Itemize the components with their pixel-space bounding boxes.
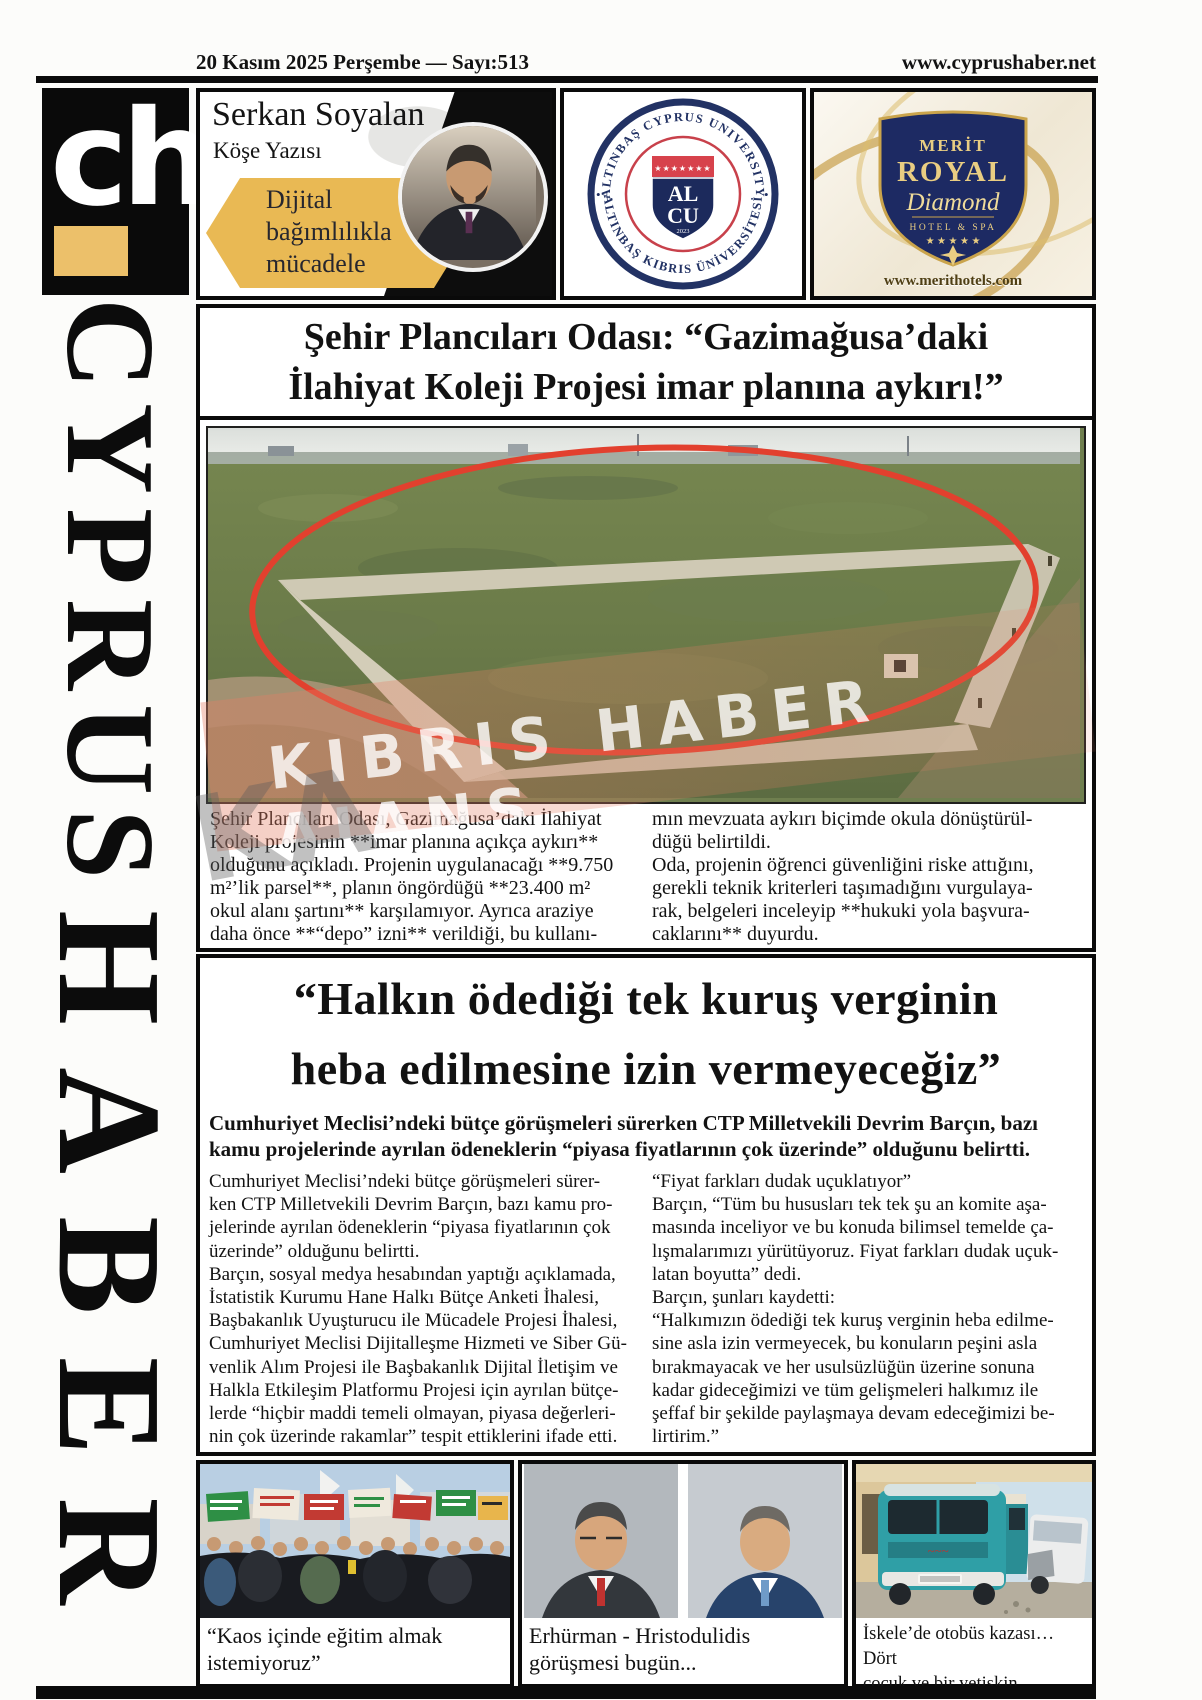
story1-column-left: Şehir Plancıları Odası, Gazimağusa’daki …: [210, 808, 638, 946]
seal-separator-right: •: [764, 187, 769, 202]
bottom-story-bus-crash: ~~~ İskele’de otobüs kazası…Dör: [852, 1460, 1096, 1688]
newspaper-logo: ch: [42, 88, 189, 295]
seal-year: 2023: [677, 228, 690, 235]
university-seal: ALTINBAŞ CYPRUS UNIVERSITY ALTINBAŞ KIBR…: [564, 92, 802, 296]
story1-box: Şehir Plancıları Odası: “Gazimağusa’daki…: [196, 304, 1096, 952]
dateline: 20 Kasım 2025 Perşembe — Sayı:513: [196, 50, 529, 75]
seal-shield-stars: ★★★★★★★: [654, 164, 711, 173]
bottom-story-meeting: Erhürman - Hristodulidis görüşmesi bugün…: [518, 1460, 848, 1688]
protest-photo-art: [200, 1464, 510, 1618]
bus-photo-art: ~~~: [856, 1464, 1092, 1618]
columnist-promo-box: Serkan Soyalan Köşe Yazısı Dijital bağım…: [196, 88, 556, 300]
story2-column-right: “Fiyat farkları dudak uçuklatıyor” Barçı…: [652, 1170, 1090, 1448]
logo-ch-letters: ch: [50, 82, 208, 236]
columnist-photo: [398, 122, 548, 272]
svg-text:~~~: ~~~: [927, 1543, 948, 1558]
meeting-photo-art: [522, 1464, 844, 1618]
columnist-topic: Dijital bağımlılıkla mücadele: [266, 184, 392, 280]
hotel-name-royal: ROYAL: [897, 156, 1009, 188]
hotel-name-diamond: Diamond: [905, 189, 1000, 216]
story2-standfirst: Cumhuriyet Meclisi’ndeki bütçe görüşmele…: [209, 1110, 1085, 1162]
newspaper-website: www.cyprushaber.net: [902, 50, 1096, 75]
story1-photo: [206, 426, 1086, 804]
bus-crash-photo: ~~~: [856, 1464, 1092, 1618]
hotel-ad-box: MERİT ROYAL Diamond HOTEL & SPA ★ ★ ★ ★ …: [810, 88, 1096, 300]
university-ad-box: ALTINBAŞ CYPRUS UNIVERSITY ALTINBAŞ KIBR…: [560, 88, 806, 300]
logo-yellow-block: [54, 226, 128, 276]
story1-headline: Şehir Plancıları Odası: “Gazimağusa’daki…: [200, 308, 1092, 420]
field-photo-art: [208, 428, 1080, 798]
columnist-portrait-art: [402, 126, 536, 260]
seal-separator-left: •: [596, 187, 601, 202]
meeting-caption: Erhürman - Hristodulidis görüşmesi bugün…: [522, 1620, 844, 1678]
story2-box: “Halkın ödediği tek kuruş verginin heba …: [196, 954, 1096, 1456]
meeting-photos: [522, 1464, 844, 1618]
story2-headline: “Halkın ödediği tek kuruş verginin heba …: [200, 964, 1092, 1104]
newspaper-front-page: 20 Kasım 2025 Perşembe — Sayı:513 www.cy…: [0, 0, 1202, 1700]
story1-column-right: mın mevzuata aykırı biçimde okula dönüşt…: [652, 808, 1088, 946]
protest-photo: [200, 1464, 510, 1618]
masthead-title-cyprus: CYPRUS: [30, 298, 188, 908]
masthead-title-haber: HABER: [30, 910, 188, 1665]
protest-caption: “Kaos içinde eğitim almak istemiyoruz”: [200, 1620, 510, 1678]
columnist-name: Serkan Soyalan: [212, 96, 424, 134]
bottom-rule: [36, 1686, 1096, 1699]
story2-column-left: Cumhuriyet Meclisi’ndeki bütçe görüşmele…: [209, 1170, 645, 1448]
bottom-story-protest: “Kaos içinde eğitim almak istemiyoruz”: [196, 1460, 514, 1688]
hotel-website: www.merithotels.com: [814, 273, 1092, 290]
seal-shield-cu: CU: [667, 203, 699, 228]
hotel-ad-art: MERİT ROYAL Diamond HOTEL & SPA ★ ★ ★ ★ …: [814, 92, 1092, 296]
hotel-name-merit: MERİT: [919, 136, 987, 155]
columnist-subtitle: Köşe Yazısı: [213, 138, 322, 164]
hotel-name-hotelspa: HOTEL & SPA: [910, 223, 997, 233]
